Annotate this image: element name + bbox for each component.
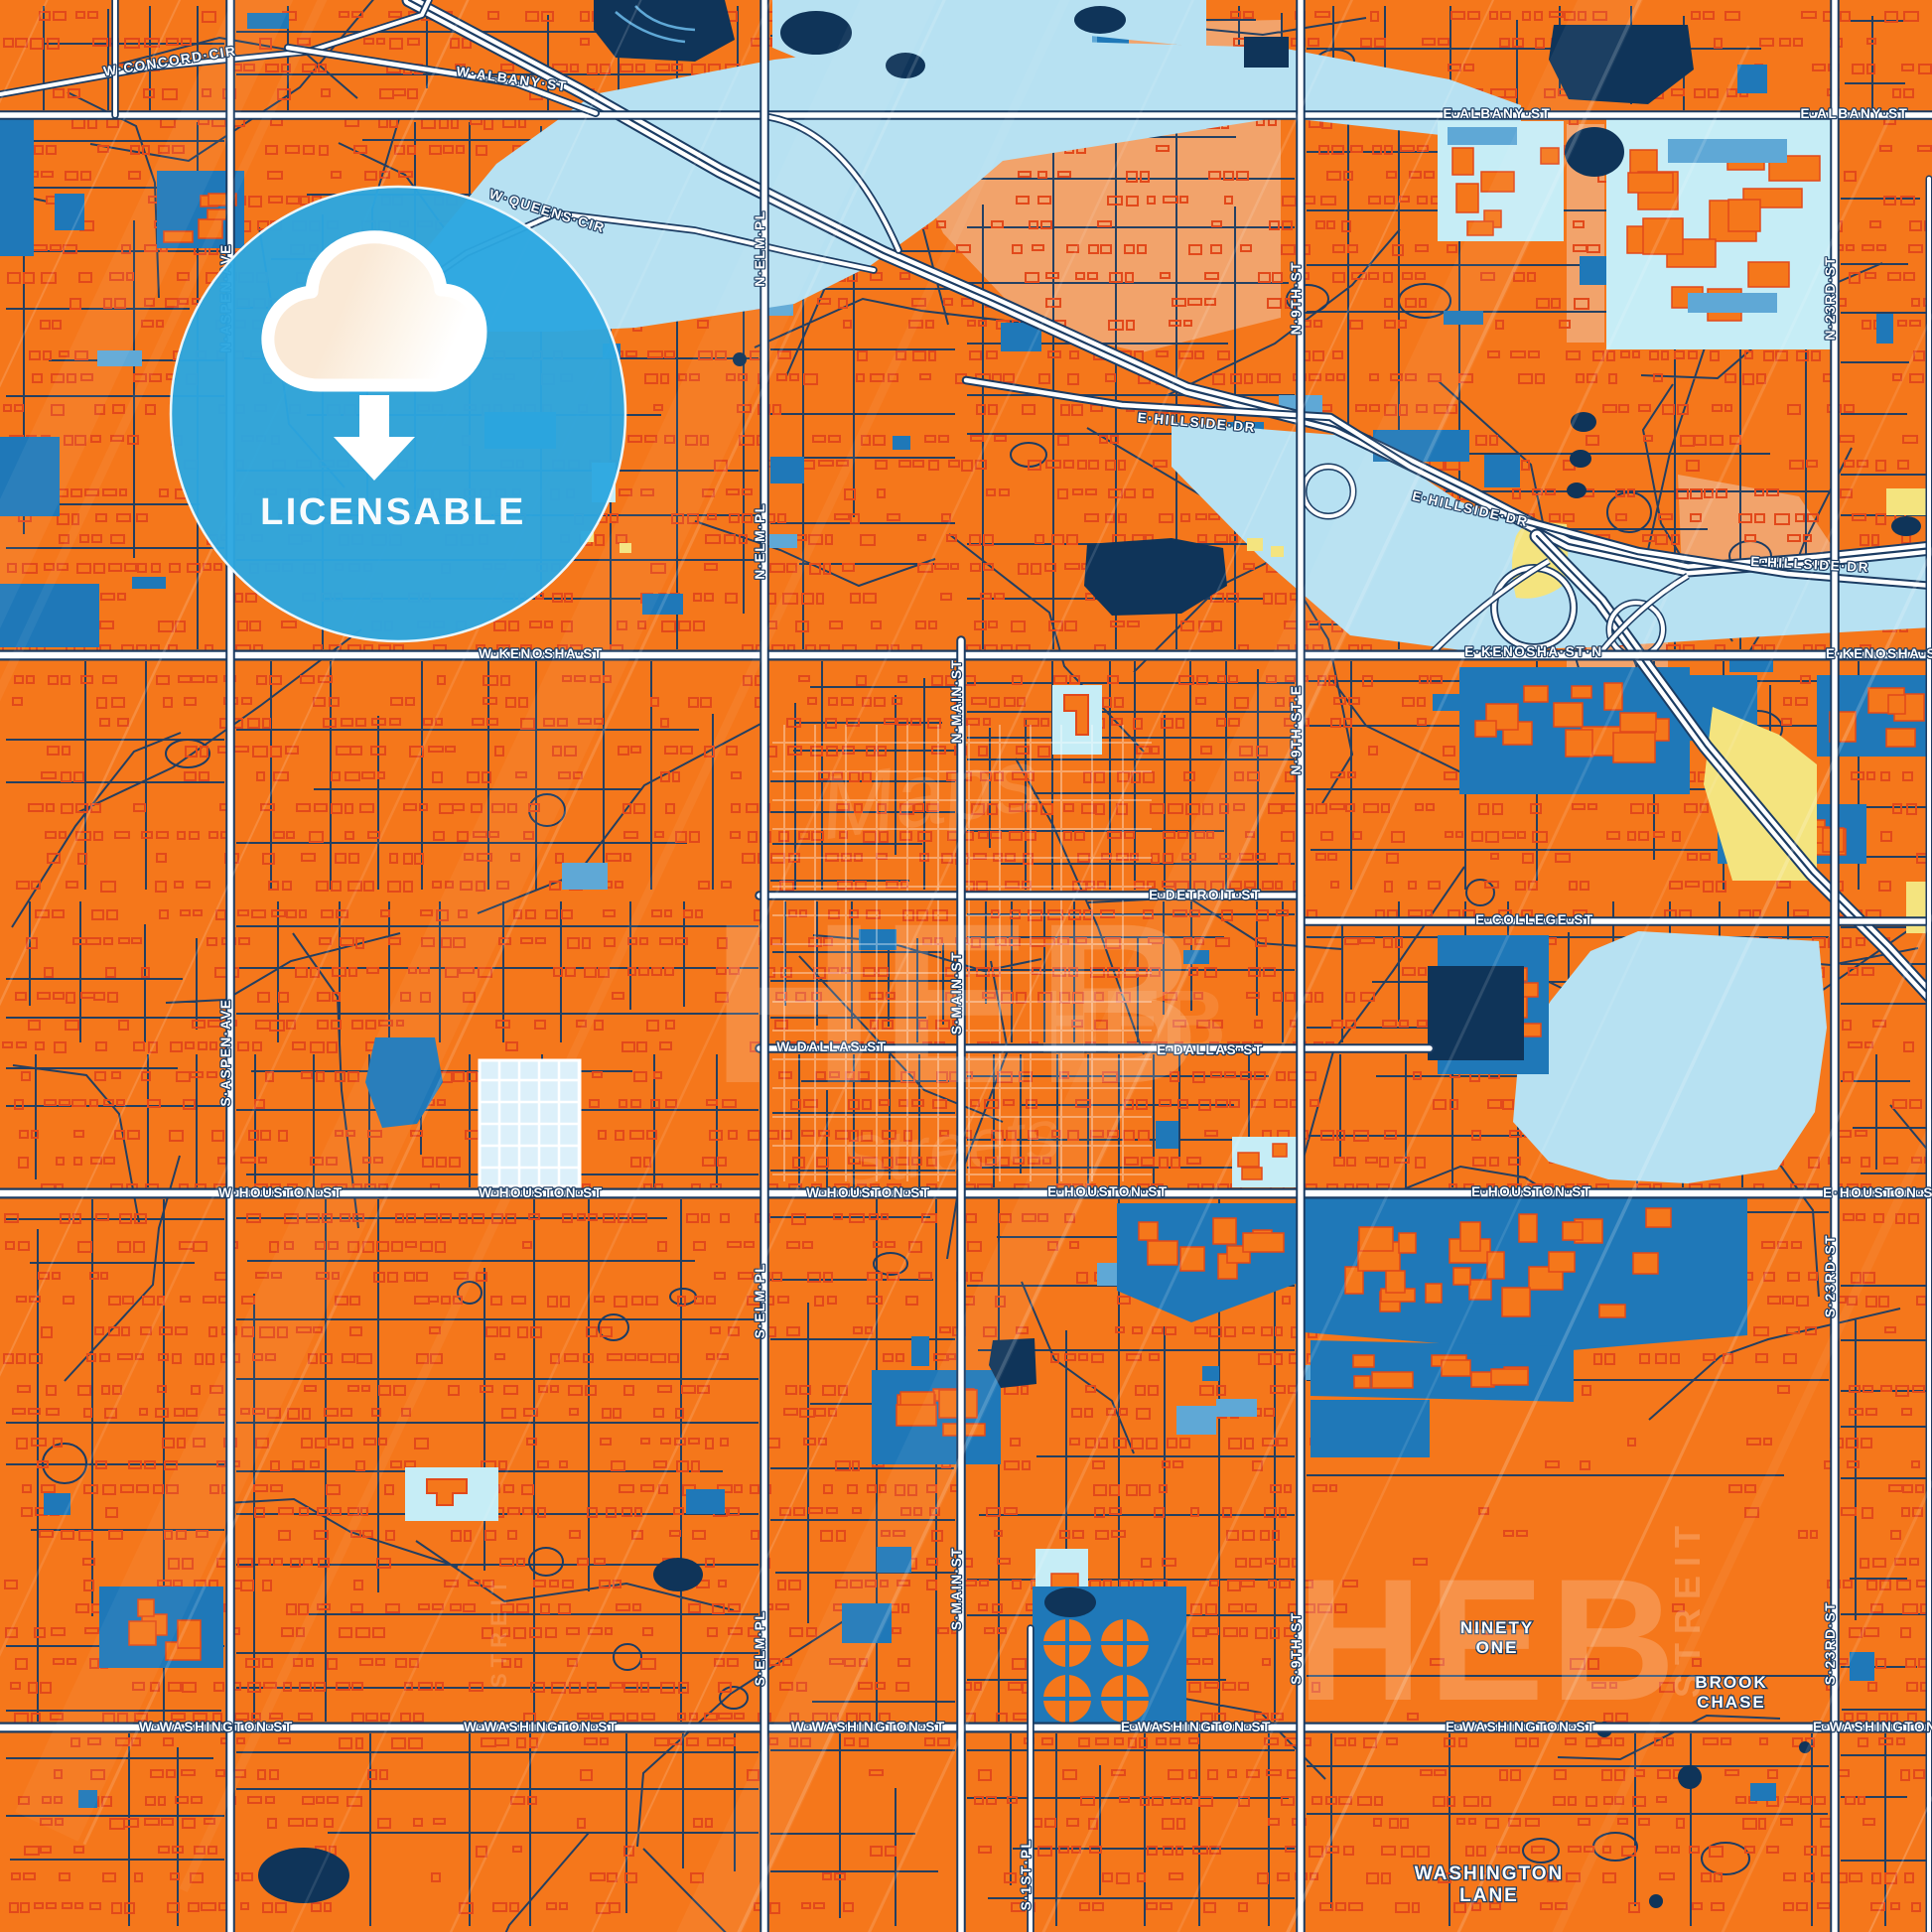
svg-text:E·KENOSHA·ST: E·KENOSHA·ST bbox=[1826, 646, 1932, 661]
svg-text:N·23RD·ST: N·23RD·ST bbox=[1823, 256, 1838, 341]
svg-text:W·HOUSTON·ST: W·HOUSTON·ST bbox=[479, 1185, 603, 1200]
svg-text:LANE: LANE bbox=[1459, 1885, 1519, 1906]
svg-text:S·23RD·ST: S·23RD·ST bbox=[1823, 1601, 1838, 1685]
svg-text:W·WASHINGTON·ST: W·WASHINGTON·ST bbox=[139, 1720, 294, 1734]
svg-text:E·HOUSTON·ST: E·HOUSTON·ST bbox=[1471, 1184, 1592, 1199]
svg-text:S·23RD·ST: S·23RD·ST bbox=[1823, 1234, 1838, 1317]
svg-text:N·MAIN·ST: N·MAIN·ST bbox=[949, 659, 964, 744]
svg-text:S·MAIN·ST: S·MAIN·ST bbox=[949, 1547, 964, 1630]
svg-text:S·ELM·PL: S·ELM·PL bbox=[753, 1263, 767, 1339]
svg-text:HEB: HEB bbox=[1037, 973, 1226, 1072]
svg-text:S·1ST·PL: S·1ST·PL bbox=[1019, 1839, 1034, 1911]
svg-text:N·9TH·ST: N·9TH·ST bbox=[1289, 261, 1304, 335]
svg-text:E·KENOSHA·ST·N: E·KENOSHA·ST·N bbox=[1464, 644, 1602, 659]
svg-text:HEB: HEB bbox=[1297, 1544, 1681, 1737]
svg-text:E·WASHINGTON·ST: E·WASHINGTON·ST bbox=[1121, 1720, 1272, 1734]
svg-text:S·ASPEN·AVE: S·ASPEN·AVE bbox=[218, 999, 233, 1107]
svg-text:STREIT: STREIT bbox=[1667, 1517, 1708, 1698]
svg-text:STREIT: STREIT bbox=[486, 1575, 511, 1688]
svg-text:S·ELM·PL: S·ELM·PL bbox=[753, 1610, 767, 1687]
svg-text:E·COLLEGE·ST: E·COLLEGE·ST bbox=[1475, 912, 1594, 927]
svg-text:LICENSABLE: LICENSABLE bbox=[260, 491, 526, 533]
svg-text:E·HOUSTON·ST: E·HOUSTON·ST bbox=[1823, 1185, 1932, 1200]
svg-text:W·WASHINGTON·ST: W·WASHINGTON·ST bbox=[464, 1720, 619, 1734]
svg-text:E·WASHINGTON·ST: E·WASHINGTON·ST bbox=[1813, 1720, 1932, 1734]
svg-text:N·ELM·PL: N·ELM·PL bbox=[753, 502, 767, 579]
